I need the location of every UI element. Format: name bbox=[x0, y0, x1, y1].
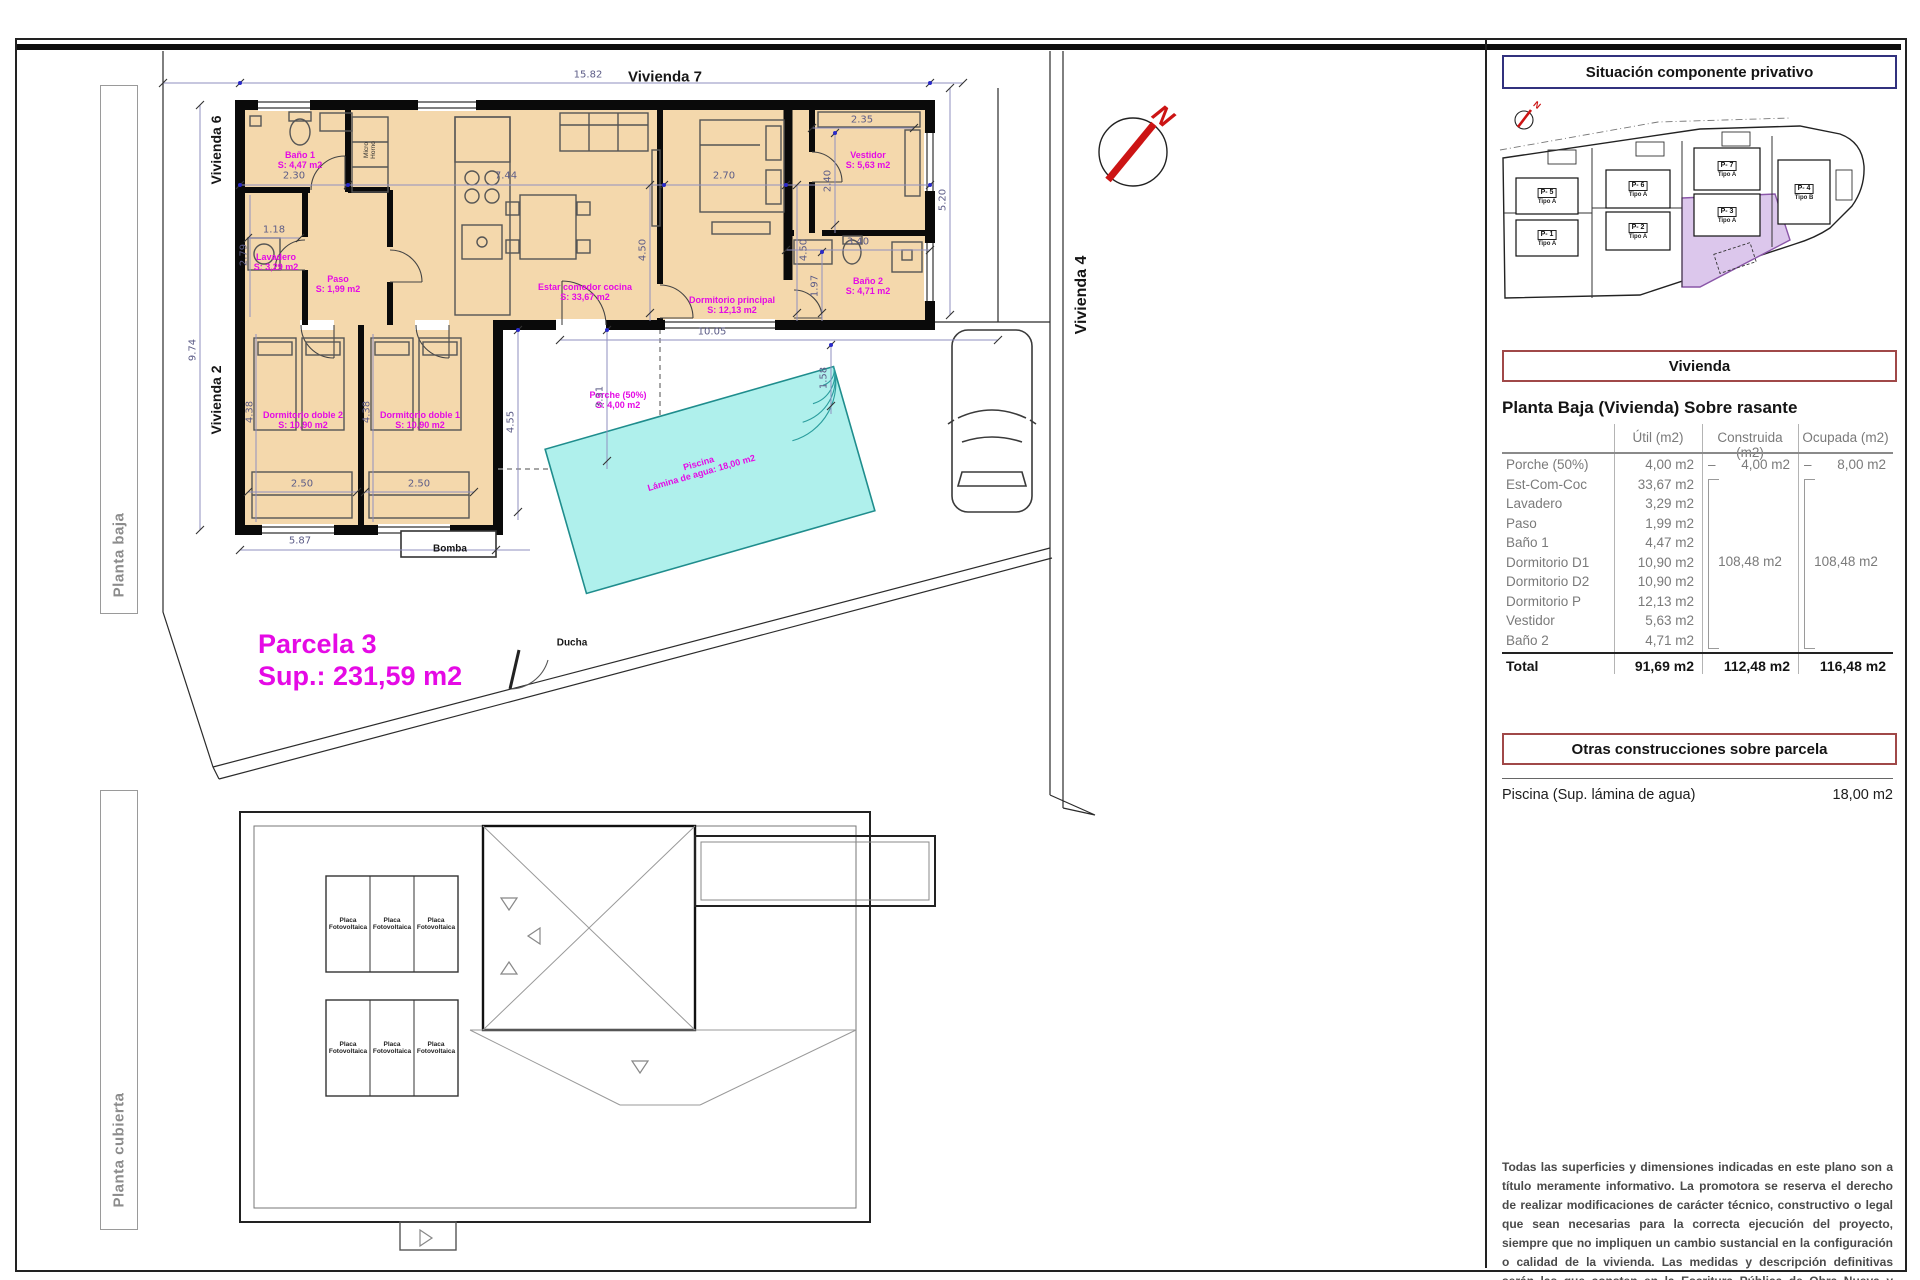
otras-title: Otras construcciones sobre parcela bbox=[1572, 741, 1828, 758]
dim-3-40: 3.40 bbox=[847, 237, 869, 248]
planta-baja-heading: Planta Baja (Vivienda) Sobre rasante bbox=[1502, 398, 1797, 418]
table-row: Lavadero3,29 m2 bbox=[1502, 494, 1893, 514]
room-label-dormitorio-principal: Dormitorio principalS: 12,13 m2 bbox=[689, 295, 775, 315]
tab-planta-cubierta-label: Planta cubierta bbox=[111, 1092, 128, 1207]
total-construida: 112,48 m2 bbox=[1702, 658, 1790, 674]
parcel-name: Parcela 3 bbox=[258, 628, 462, 660]
room-label-dormitorio-doble2: Dormitorio doble 2S: 10,90 m2 bbox=[263, 410, 343, 430]
ducha-label: Ducha bbox=[557, 638, 588, 649]
site-parcel-7: P- 7Tipo A bbox=[1718, 159, 1737, 179]
neighbor-vivienda-4: Vivienda 4 bbox=[1073, 256, 1091, 335]
placa-label-3: PlacaFotovoltaica bbox=[417, 917, 455, 931]
room-label-bano2: Baño 2S: 4,71 m2 bbox=[846, 276, 891, 296]
dim-7-44: 7.44 bbox=[495, 171, 517, 182]
table-row: Baño 24,71 m2 bbox=[1502, 631, 1893, 651]
dim-5-20: 5.20 bbox=[938, 189, 949, 211]
dim-4-38-b: 4.38 bbox=[362, 401, 373, 423]
dim-2-50-b: 2.50 bbox=[408, 479, 430, 490]
placa-label-5: PlacaFotovoltaica bbox=[373, 1041, 411, 1055]
site-parcel-1: P- 1Tipo A bbox=[1538, 228, 1557, 248]
micro-horno-label: MicroHorno bbox=[363, 141, 377, 159]
dim-4-55: 4.55 bbox=[506, 411, 517, 433]
col-header-ocupada: Ocupada (m2) bbox=[1798, 430, 1893, 445]
dim-4-50-a: 4.50 bbox=[638, 239, 649, 261]
vivienda-title-box: Vivienda bbox=[1502, 350, 1897, 382]
dim-2-40: 2.40 bbox=[823, 170, 834, 192]
site-parcel-5: P- 5Tipo A bbox=[1538, 186, 1557, 206]
disclaimer-text: Todas las superficies y dimensiones indi… bbox=[1502, 1158, 1893, 1280]
room-label-lavadero: LavaderoS: 3,29 m2 bbox=[254, 252, 299, 272]
vivienda-title: Vivienda bbox=[1669, 358, 1730, 375]
site-parcel-4: P- 4Tipo B bbox=[1795, 182, 1814, 202]
dim-1-18: 1.18 bbox=[263, 225, 285, 236]
col-header-util: Útil (m2) bbox=[1614, 430, 1702, 445]
dim-15-82: 15.82 bbox=[574, 70, 603, 81]
room-label-vestidor: VestidorS: 5,63 m2 bbox=[846, 150, 891, 170]
neighbor-vivienda-6: Vivienda 6 bbox=[208, 115, 224, 184]
dim-5-87: 5.87 bbox=[289, 536, 311, 547]
total-ocupada: 116,48 m2 bbox=[1798, 658, 1886, 674]
total-label: Total bbox=[1506, 658, 1538, 674]
room-label-bano1: Baño 1S: 4,47 m2 bbox=[278, 150, 323, 170]
piscina-label: Piscina (Sup. lámina de agua) bbox=[1502, 787, 1695, 803]
placa-label-6: PlacaFotovoltaica bbox=[417, 1041, 455, 1055]
dim-2-79: 2.79 bbox=[239, 244, 250, 266]
table-row: Dormitorio D210,90 m2 bbox=[1502, 572, 1893, 592]
piscina-row: Piscina (Sup. lámina de agua) 18,00 m2 bbox=[1502, 778, 1893, 803]
dim-4-38-a: 4.38 bbox=[245, 401, 256, 423]
table-row: Vestidor5,63 m2 bbox=[1502, 611, 1893, 631]
dim-2-70: 2.70 bbox=[713, 171, 735, 182]
construida-group-value: 108,48 m2 bbox=[1706, 554, 1794, 569]
dim-2-50-a: 2.50 bbox=[291, 479, 313, 490]
placa-label-2: PlacaFotovoltaica bbox=[373, 917, 411, 931]
site-parcel-6: P- 6Tipo A bbox=[1629, 179, 1648, 199]
placa-label-4: PlacaFotovoltaica bbox=[329, 1041, 367, 1055]
porche-ocupada-value: 8,00 m2 bbox=[1798, 457, 1886, 472]
room-label-paso: PasoS: 1,99 m2 bbox=[316, 274, 361, 294]
dim-10-05: 10.05 bbox=[698, 327, 727, 338]
situacion-title: Situación componente privativo bbox=[1586, 64, 1814, 81]
dim-4-50-b: 4.50 bbox=[799, 239, 810, 261]
dim-3-31: 3.31 bbox=[595, 386, 606, 408]
roof-plan-drawing bbox=[240, 812, 935, 1250]
table-row: Dormitorio P12,13 m2 bbox=[1502, 592, 1893, 612]
neighbor-vivienda-2: Vivienda 2 bbox=[208, 365, 224, 434]
dim-1-58: 1.58 bbox=[819, 367, 830, 389]
total-util: 91,69 m2 bbox=[1614, 658, 1694, 674]
dim-9-74: 9.74 bbox=[188, 339, 199, 361]
table-row: Baño 14,47 m2 bbox=[1502, 533, 1893, 553]
site-parcel-3: P- 3Tipo A bbox=[1718, 205, 1737, 225]
otras-title-box: Otras construcciones sobre parcela bbox=[1502, 733, 1897, 765]
parcel-title: Parcela 3 Sup.: 231,59 m2 bbox=[258, 628, 462, 692]
bomba-label: Bomba bbox=[433, 544, 467, 555]
dim-1-97: 1.97 bbox=[810, 275, 821, 297]
room-label-dormitorio-doble1: Dormitorio doble 1S: 10,90 m2 bbox=[380, 410, 460, 430]
neighbor-vivienda-7: Vivienda 7 bbox=[628, 69, 702, 86]
room-label-estar: Estar comedor cocinaS: 33,67 m2 bbox=[538, 282, 632, 302]
parcel-area: Sup.: 231,59 m2 bbox=[258, 660, 462, 692]
tab-planta-baja-label: Planta baja bbox=[111, 513, 128, 598]
areas-table: Útil (m2) Construida (m2) Ocupada (m2) P… bbox=[1502, 424, 1893, 676]
placa-label-1: PlacaFotovoltaica bbox=[329, 917, 367, 931]
porche-construida-value: 4,00 m2 bbox=[1702, 457, 1790, 472]
plan-sheet: Planta baja Planta cubierta Vivienda 7 V… bbox=[0, 0, 1920, 1280]
dim-2-30: 2.30 bbox=[283, 171, 305, 182]
car-outline bbox=[948, 330, 1036, 512]
situacion-title-box: Situación componente privativo bbox=[1502, 55, 1897, 89]
table-row: Est-Com-Coc33,67 m2 bbox=[1502, 475, 1893, 495]
dim-2-35: 2.35 bbox=[851, 115, 873, 126]
ocupada-group-value: 108,48 m2 bbox=[1802, 554, 1890, 569]
site-parcel-2: P- 2Tipo A bbox=[1629, 221, 1648, 241]
piscina-value: 18,00 m2 bbox=[1833, 787, 1893, 803]
table-row: Paso1,99 m2 bbox=[1502, 514, 1893, 534]
